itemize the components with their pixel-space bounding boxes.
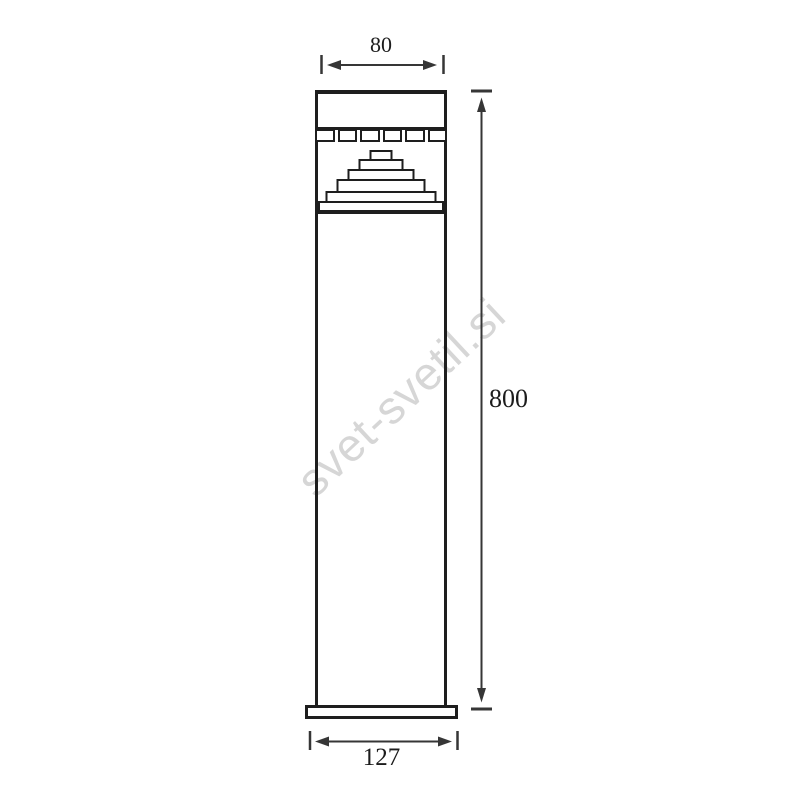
arrowhead-right-icon	[423, 60, 437, 70]
technical-drawing-canvas: svet-svetil.si	[0, 0, 800, 800]
dimension-label-height: 800	[489, 385, 528, 414]
reflector-step-4	[337, 179, 426, 193]
arrowhead-down-icon	[477, 688, 486, 703]
arrowhead-left-icon	[327, 60, 341, 70]
louver-cell	[315, 130, 335, 142]
louver-cell	[405, 130, 425, 142]
dimension-label-base-width: 127	[305, 744, 458, 772]
dimension-label-top-width: 80	[315, 33, 447, 57]
arrowhead-up-icon	[477, 98, 486, 113]
reflector-step-1	[370, 150, 393, 161]
louver-cell	[428, 130, 448, 142]
louver-cell	[338, 130, 358, 142]
louver-cell	[360, 130, 380, 142]
head-separator-line	[315, 210, 447, 214]
dimension-top-width	[322, 55, 444, 74]
louver-row	[315, 130, 447, 142]
base-plate	[305, 705, 458, 719]
louver-cell	[383, 130, 403, 142]
